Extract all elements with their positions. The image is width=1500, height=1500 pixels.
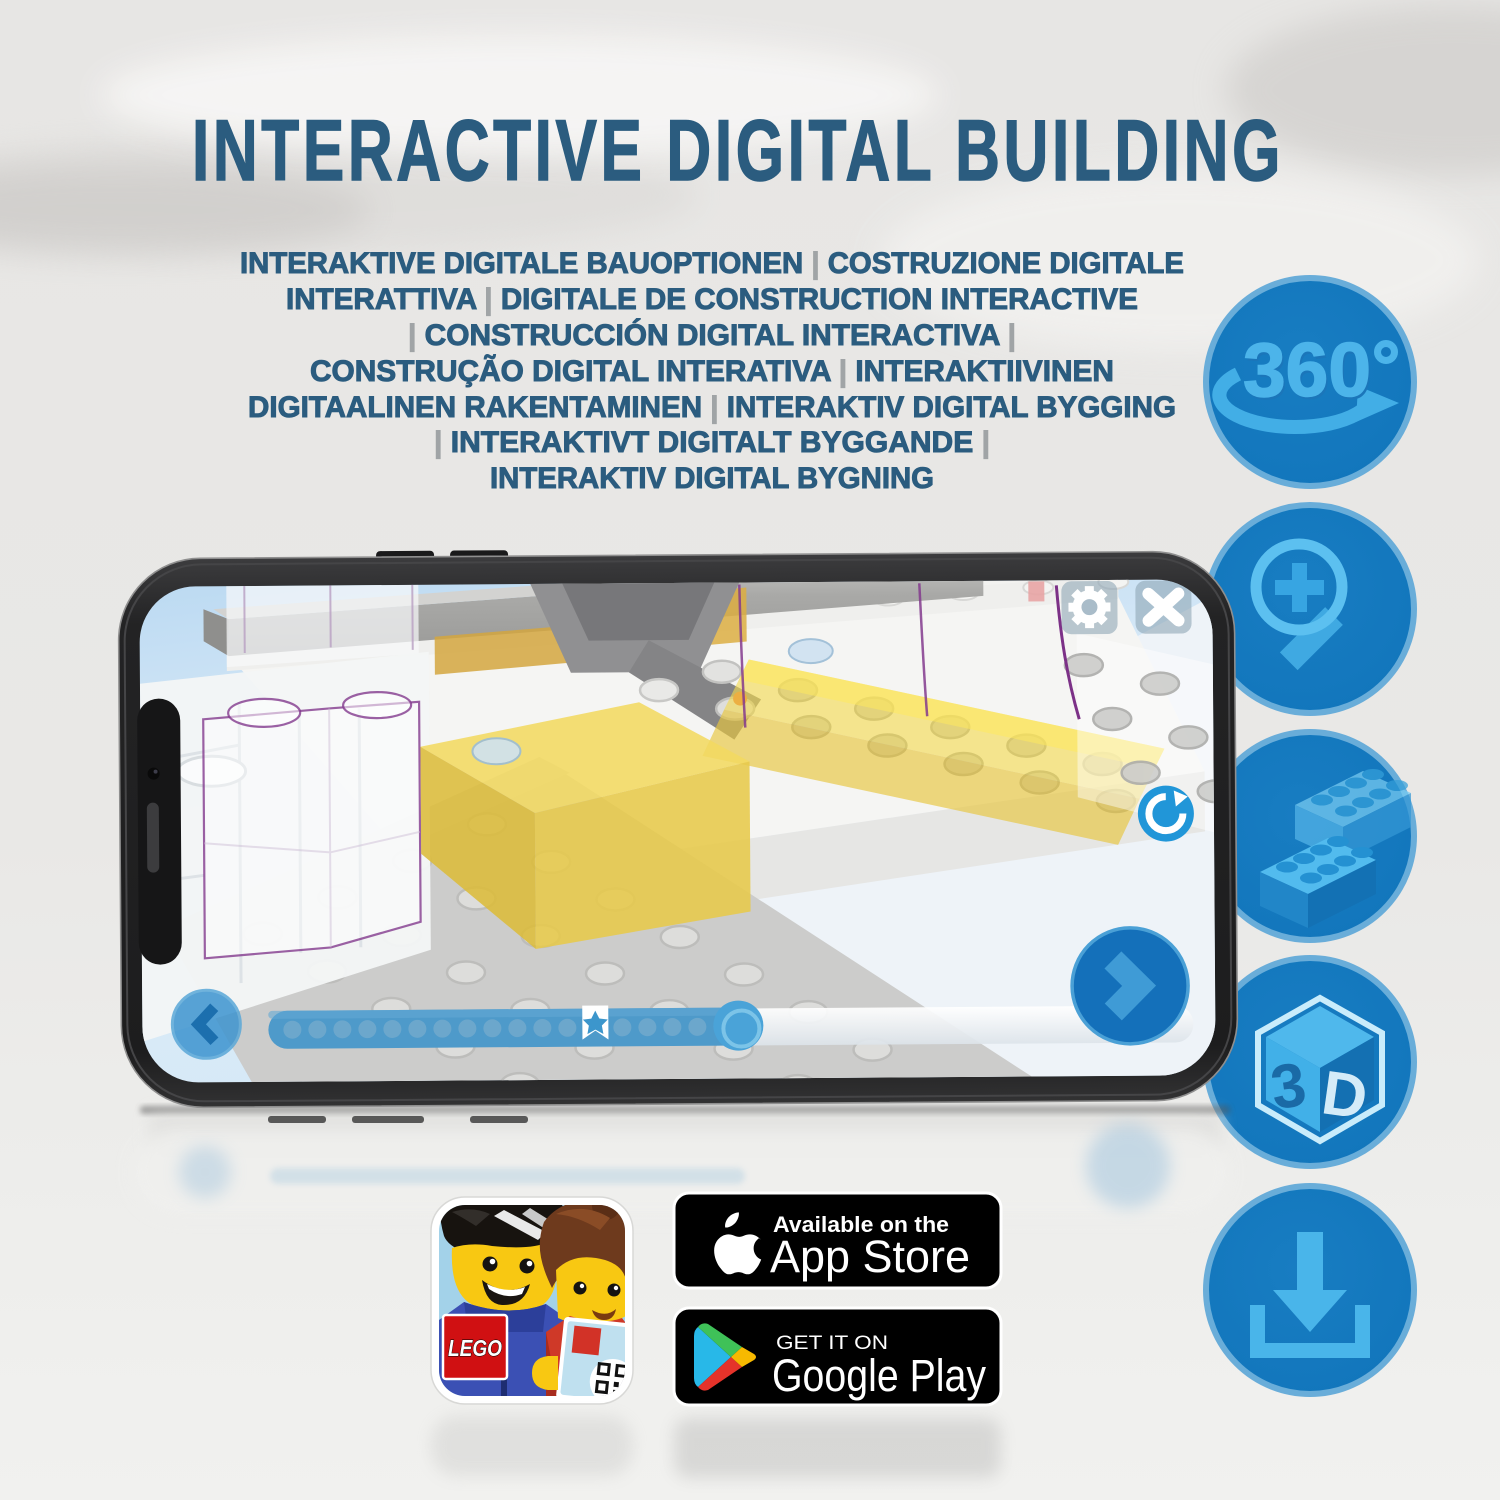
svg-text:INTERATTIVA | DIGITALE DE CONS: INTERATTIVA | DIGITALE DE CONSTRUCTION I…: [286, 283, 1138, 316]
svg-text:App Store: App Store: [770, 1231, 970, 1282]
svg-text:| CONSTRUCCIÓN DIGITAL INTERAC: | CONSTRUCCIÓN DIGITAL INTERACTIVA |: [408, 318, 1016, 352]
svg-text:DIGITAALINEN RAKENTAMINEN | IN: DIGITAALINEN RAKENTAMINEN | INTERAKTIV D…: [248, 391, 1176, 424]
svg-text:D: D: [1318, 1058, 1372, 1133]
svg-text:INTERACTIVE DIGITAL BUILDING: INTERACTIVE DIGITAL BUILDING: [192, 103, 1284, 199]
svg-text:INTERAKTIVE DIGITALE BAUOPTION: INTERAKTIVE DIGITALE BAUOPTIONEN | COSTR…: [240, 247, 1184, 280]
svg-text:CONSTRUÇÃO DIGITAL INTERATIVA: CONSTRUÇÃO DIGITAL INTERATIVA | INTERAKT…: [310, 354, 1114, 388]
svg-text:360: 360: [1243, 328, 1371, 413]
svg-text:INTERAKTIV DIGITAL BYGNING: INTERAKTIV DIGITAL BYGNING: [490, 462, 934, 495]
svg-text:LEGO: LEGO: [448, 1335, 502, 1361]
svg-text:Google Play: Google Play: [772, 1350, 986, 1401]
svg-text:| INTERAKTIVT DIGITALT BYGGAND: | INTERAKTIVT DIGITALT BYGGANDE |: [434, 426, 990, 459]
